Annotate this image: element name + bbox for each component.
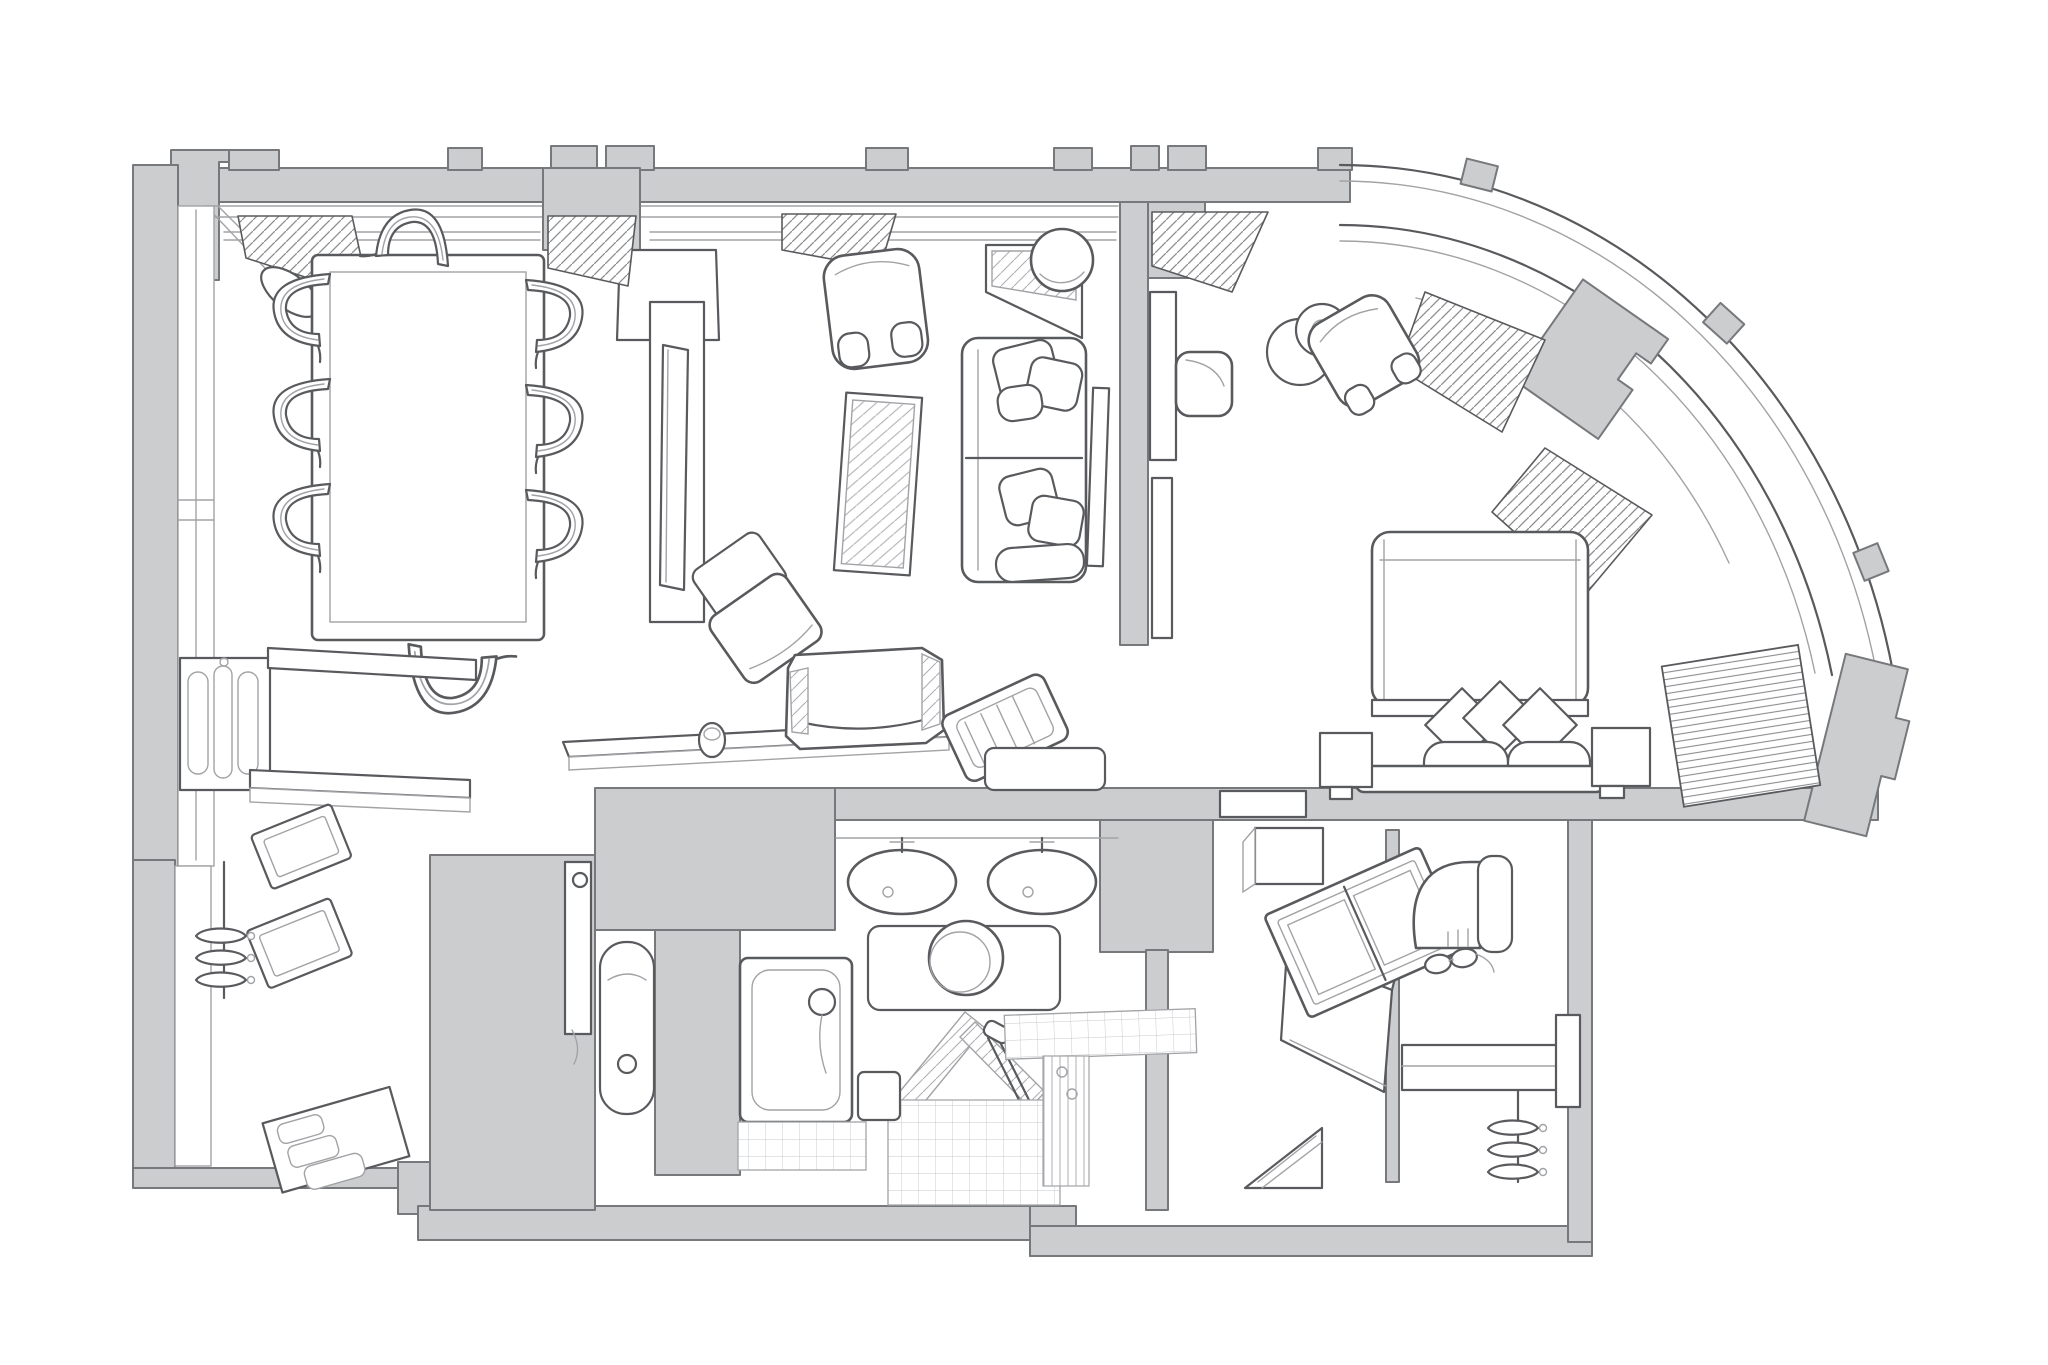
shower-floor-tiles <box>888 1100 1060 1205</box>
sink <box>988 850 1096 914</box>
room-dressing <box>1243 828 1580 1188</box>
left-wall <box>133 165 178 875</box>
top-wall <box>175 168 1350 202</box>
room-living <box>677 229 1109 688</box>
double-sink-vanity <box>836 838 1118 914</box>
wall-shelf <box>268 648 476 680</box>
wall-mirror-panel <box>1152 478 1172 638</box>
coat-hanger-icon <box>196 973 255 987</box>
corner-console <box>986 229 1093 338</box>
vase <box>699 723 725 757</box>
room-entry <box>196 804 411 1199</box>
hand-shower <box>809 989 835 1015</box>
floor-plan-page <box>0 0 2048 1365</box>
bath-dressing-divider <box>1100 820 1213 952</box>
drape-bedroom-1 <box>1152 212 1268 292</box>
coat-hanger-icon <box>1488 1121 1547 1135</box>
table-lamp <box>1031 229 1093 291</box>
partition-living-bedroom <box>1120 202 1148 645</box>
bidet <box>600 942 654 1114</box>
console-shelf <box>250 770 470 812</box>
curve-end-pier <box>1804 654 1921 840</box>
hall-door <box>565 862 591 1064</box>
bolster <box>995 543 1085 583</box>
duvet <box>1372 532 1588 706</box>
wall-panel <box>1087 388 1109 566</box>
bed <box>1356 532 1604 792</box>
drape-dining-right <box>548 216 636 286</box>
wall-cabinet <box>1243 828 1323 892</box>
luggage-rack <box>1245 1128 1322 1188</box>
coat-hanger-icon <box>1488 1143 1547 1157</box>
wall-mirror <box>1556 1015 1580 1107</box>
bathroom-north-wall <box>595 788 835 930</box>
closet-shelf <box>1402 1045 1566 1090</box>
tv-console <box>786 648 944 749</box>
radiator <box>1662 645 1821 807</box>
sofa <box>962 338 1086 584</box>
tiled-bench <box>1004 1009 1196 1060</box>
coat-hanger-icon <box>196 951 255 965</box>
tv-panel <box>1150 292 1176 460</box>
headboard <box>1356 766 1604 792</box>
wall-rack <box>251 804 352 890</box>
bath-floor-tiles <box>738 1122 866 1170</box>
bath-inner-wall <box>655 930 740 1175</box>
media-console <box>1176 352 1232 416</box>
dining-table <box>312 255 544 640</box>
armchair <box>821 247 930 372</box>
wall-rack <box>246 898 353 989</box>
luggage-bench <box>939 671 1105 790</box>
sink <box>848 850 956 914</box>
toilet <box>868 921 1060 1010</box>
coat-hanger-icon <box>196 929 255 943</box>
bathtub <box>740 958 852 1122</box>
suite-floor-plan <box>0 0 2048 1365</box>
step-stool <box>858 1072 900 1120</box>
throw-pillow <box>1026 494 1085 548</box>
coat-hanger-icon <box>1488 1165 1547 1179</box>
glass-coffee-table <box>834 393 922 576</box>
